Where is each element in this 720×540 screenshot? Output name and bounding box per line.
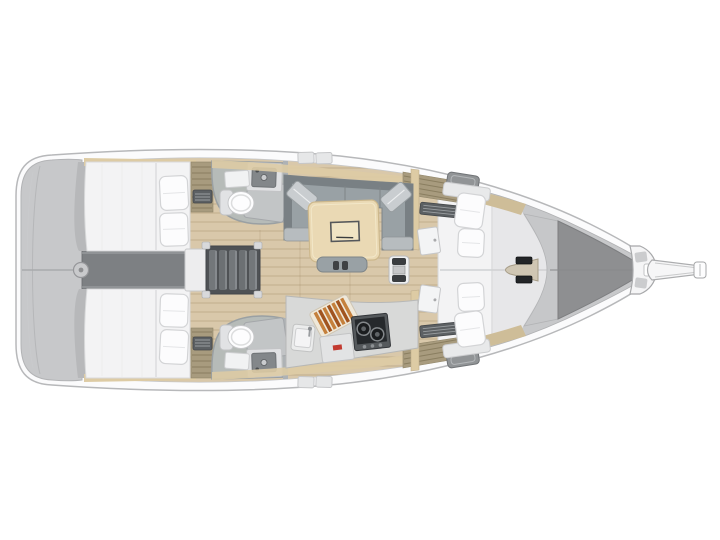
mast-step-cap-top [392, 258, 406, 265]
head-toilet [220, 190, 254, 215]
stern-platform [21, 159, 82, 381]
companionway-threshold [185, 249, 206, 291]
settee-endcap-right [382, 237, 413, 250]
sandal-1 [333, 261, 339, 270]
boat-plan-svg [0, 0, 720, 540]
windlass-gypsy-bottom [516, 276, 532, 283]
galley-cabinet [320, 333, 355, 363]
sink-drain [261, 174, 267, 180]
salon-table [308, 200, 380, 262]
table-tray-pen [336, 237, 353, 239]
companionway-steps [209, 250, 257, 290]
aft-vent-grille [193, 190, 212, 203]
forward-cabin-door [417, 227, 440, 256]
transom-hinge-dot [79, 268, 84, 273]
stove [351, 313, 390, 351]
deck-hatch-small-2 [316, 152, 332, 164]
boat-plan-stage [0, 0, 720, 540]
bowsprit [648, 260, 698, 280]
stem-notch-top [634, 251, 647, 263]
vanity-panel [224, 170, 249, 188]
stair-knob-bl [202, 291, 210, 298]
mast-step-cap-bottom [392, 275, 406, 282]
companionway [185, 242, 262, 298]
engine-compartment [74, 249, 187, 291]
sandal-2 [342, 261, 348, 270]
aft-louver-locker [191, 162, 213, 212]
mast-step-cylinder [393, 266, 405, 274]
table-recess-tray [331, 221, 360, 241]
windlass-gypsy-top [516, 257, 532, 264]
mast-step [389, 256, 409, 284]
stair-knob-br [254, 291, 262, 298]
bow-assembly [630, 246, 706, 294]
galley-sink [291, 324, 316, 352]
centerline-bench [317, 257, 367, 272]
stair-knob-tl [202, 242, 210, 249]
stem-notch-bottom [634, 277, 647, 289]
deck-hatch-small-1 [298, 152, 314, 164]
engine-strip [82, 249, 186, 291]
stair-knob-tr [254, 242, 262, 249]
